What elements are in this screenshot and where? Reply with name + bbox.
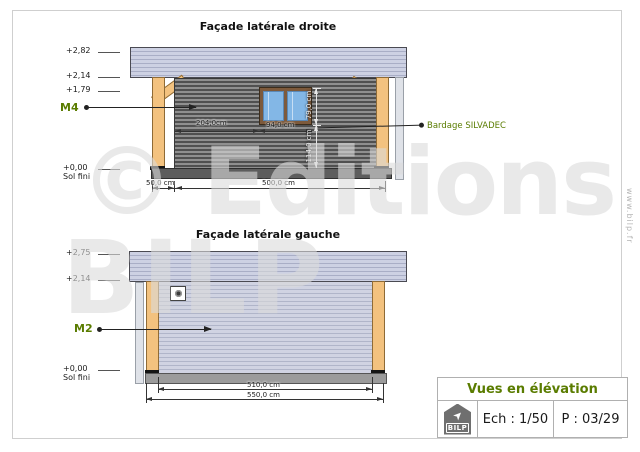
level-tick <box>98 169 120 170</box>
dim-arrow <box>377 397 383 401</box>
vent-grille <box>170 286 186 301</box>
title-block-title: Vues en élévation <box>438 378 627 401</box>
dim-arrow <box>314 88 318 94</box>
level-label: +1,79 <box>66 85 91 94</box>
level-tick <box>98 77 120 78</box>
scale-cell: Ech : 1/50 <box>478 401 554 437</box>
page-number-cell: P : 03/29 <box>554 401 627 437</box>
ground-plinth <box>151 168 392 179</box>
roof-panel <box>129 251 407 282</box>
roof-panel <box>130 47 407 78</box>
dim-wall-length: 500,0 cm <box>262 179 295 187</box>
marker-m4: M4 <box>60 101 79 114</box>
level-tick <box>98 91 120 92</box>
dim-arrow <box>146 397 152 401</box>
dim-arrow <box>379 186 385 190</box>
dim-line <box>146 399 383 400</box>
plan-page: © Editions BILP www.bilp.fr Façade latér… <box>0 0 640 452</box>
dim-arrow <box>314 125 318 131</box>
downspout <box>395 77 404 180</box>
dim-window-offset: 204,0cm <box>196 119 227 127</box>
timber-post <box>372 281 385 376</box>
leader-line-m4 <box>86 107 196 108</box>
level-label: +0,00 <box>63 163 88 172</box>
timber-post <box>152 77 165 171</box>
facade-gauche-title: Façade latérale gauche <box>133 228 403 241</box>
dim-window-height: 79,0 cm <box>305 85 313 125</box>
dim-arrow <box>158 387 164 391</box>
logo-cell: ➤ BILP <box>438 401 478 437</box>
window-pane <box>263 91 284 121</box>
dim-inner: 510,0 cm <box>247 381 280 389</box>
dim-arrow <box>259 129 265 133</box>
level-tick <box>98 280 120 281</box>
level-label: +2,14 <box>66 274 91 283</box>
cladding-annotation: Bardage SILVADEC <box>427 121 506 131</box>
dim-line <box>158 389 372 390</box>
level-label: +2,14 <box>66 71 91 80</box>
dim-post-offset: 50,0 cm <box>146 179 174 187</box>
side-url-text: www.bilp.fr <box>625 188 634 244</box>
extension-line <box>383 383 384 403</box>
facade-droite-title: Façade latérale droite <box>133 20 403 33</box>
level-tick <box>98 52 120 53</box>
dim-arrow <box>314 162 318 168</box>
leader-line-m2 <box>99 329 211 330</box>
dim-line <box>152 188 385 189</box>
timber-post <box>376 77 389 171</box>
level-label: +2,75 <box>66 248 91 257</box>
level-tick <box>98 254 120 255</box>
dim-arrow <box>175 129 181 133</box>
bilp-logo: ➤ BILP <box>444 404 471 435</box>
extension-line <box>372 377 373 393</box>
finished-floor-label: Sol fini <box>63 172 90 181</box>
downspout <box>135 282 144 384</box>
dim-window-width: 94,0 cm <box>266 121 294 129</box>
dim-line <box>175 131 259 132</box>
level-label: +0,00 <box>63 364 88 373</box>
arrow-icon: ➤ <box>450 408 464 422</box>
dim-arrow <box>176 186 182 190</box>
level-tick <box>98 370 120 371</box>
marker-m2: M2 <box>74 322 93 335</box>
dim-arrow <box>366 387 372 391</box>
level-label: +2,82 <box>66 46 91 55</box>
dim-outer: 550,0 cm <box>247 391 280 399</box>
extension-line <box>385 181 386 192</box>
dim-sill-height: 114,0 cm <box>305 126 313 166</box>
title-block: Vues en élévation ➤ BILP Ech : 1/50 P : … <box>437 377 628 438</box>
bilp-logo-text: BILP <box>446 423 470 433</box>
finished-floor-label: Sol fini <box>63 373 90 382</box>
